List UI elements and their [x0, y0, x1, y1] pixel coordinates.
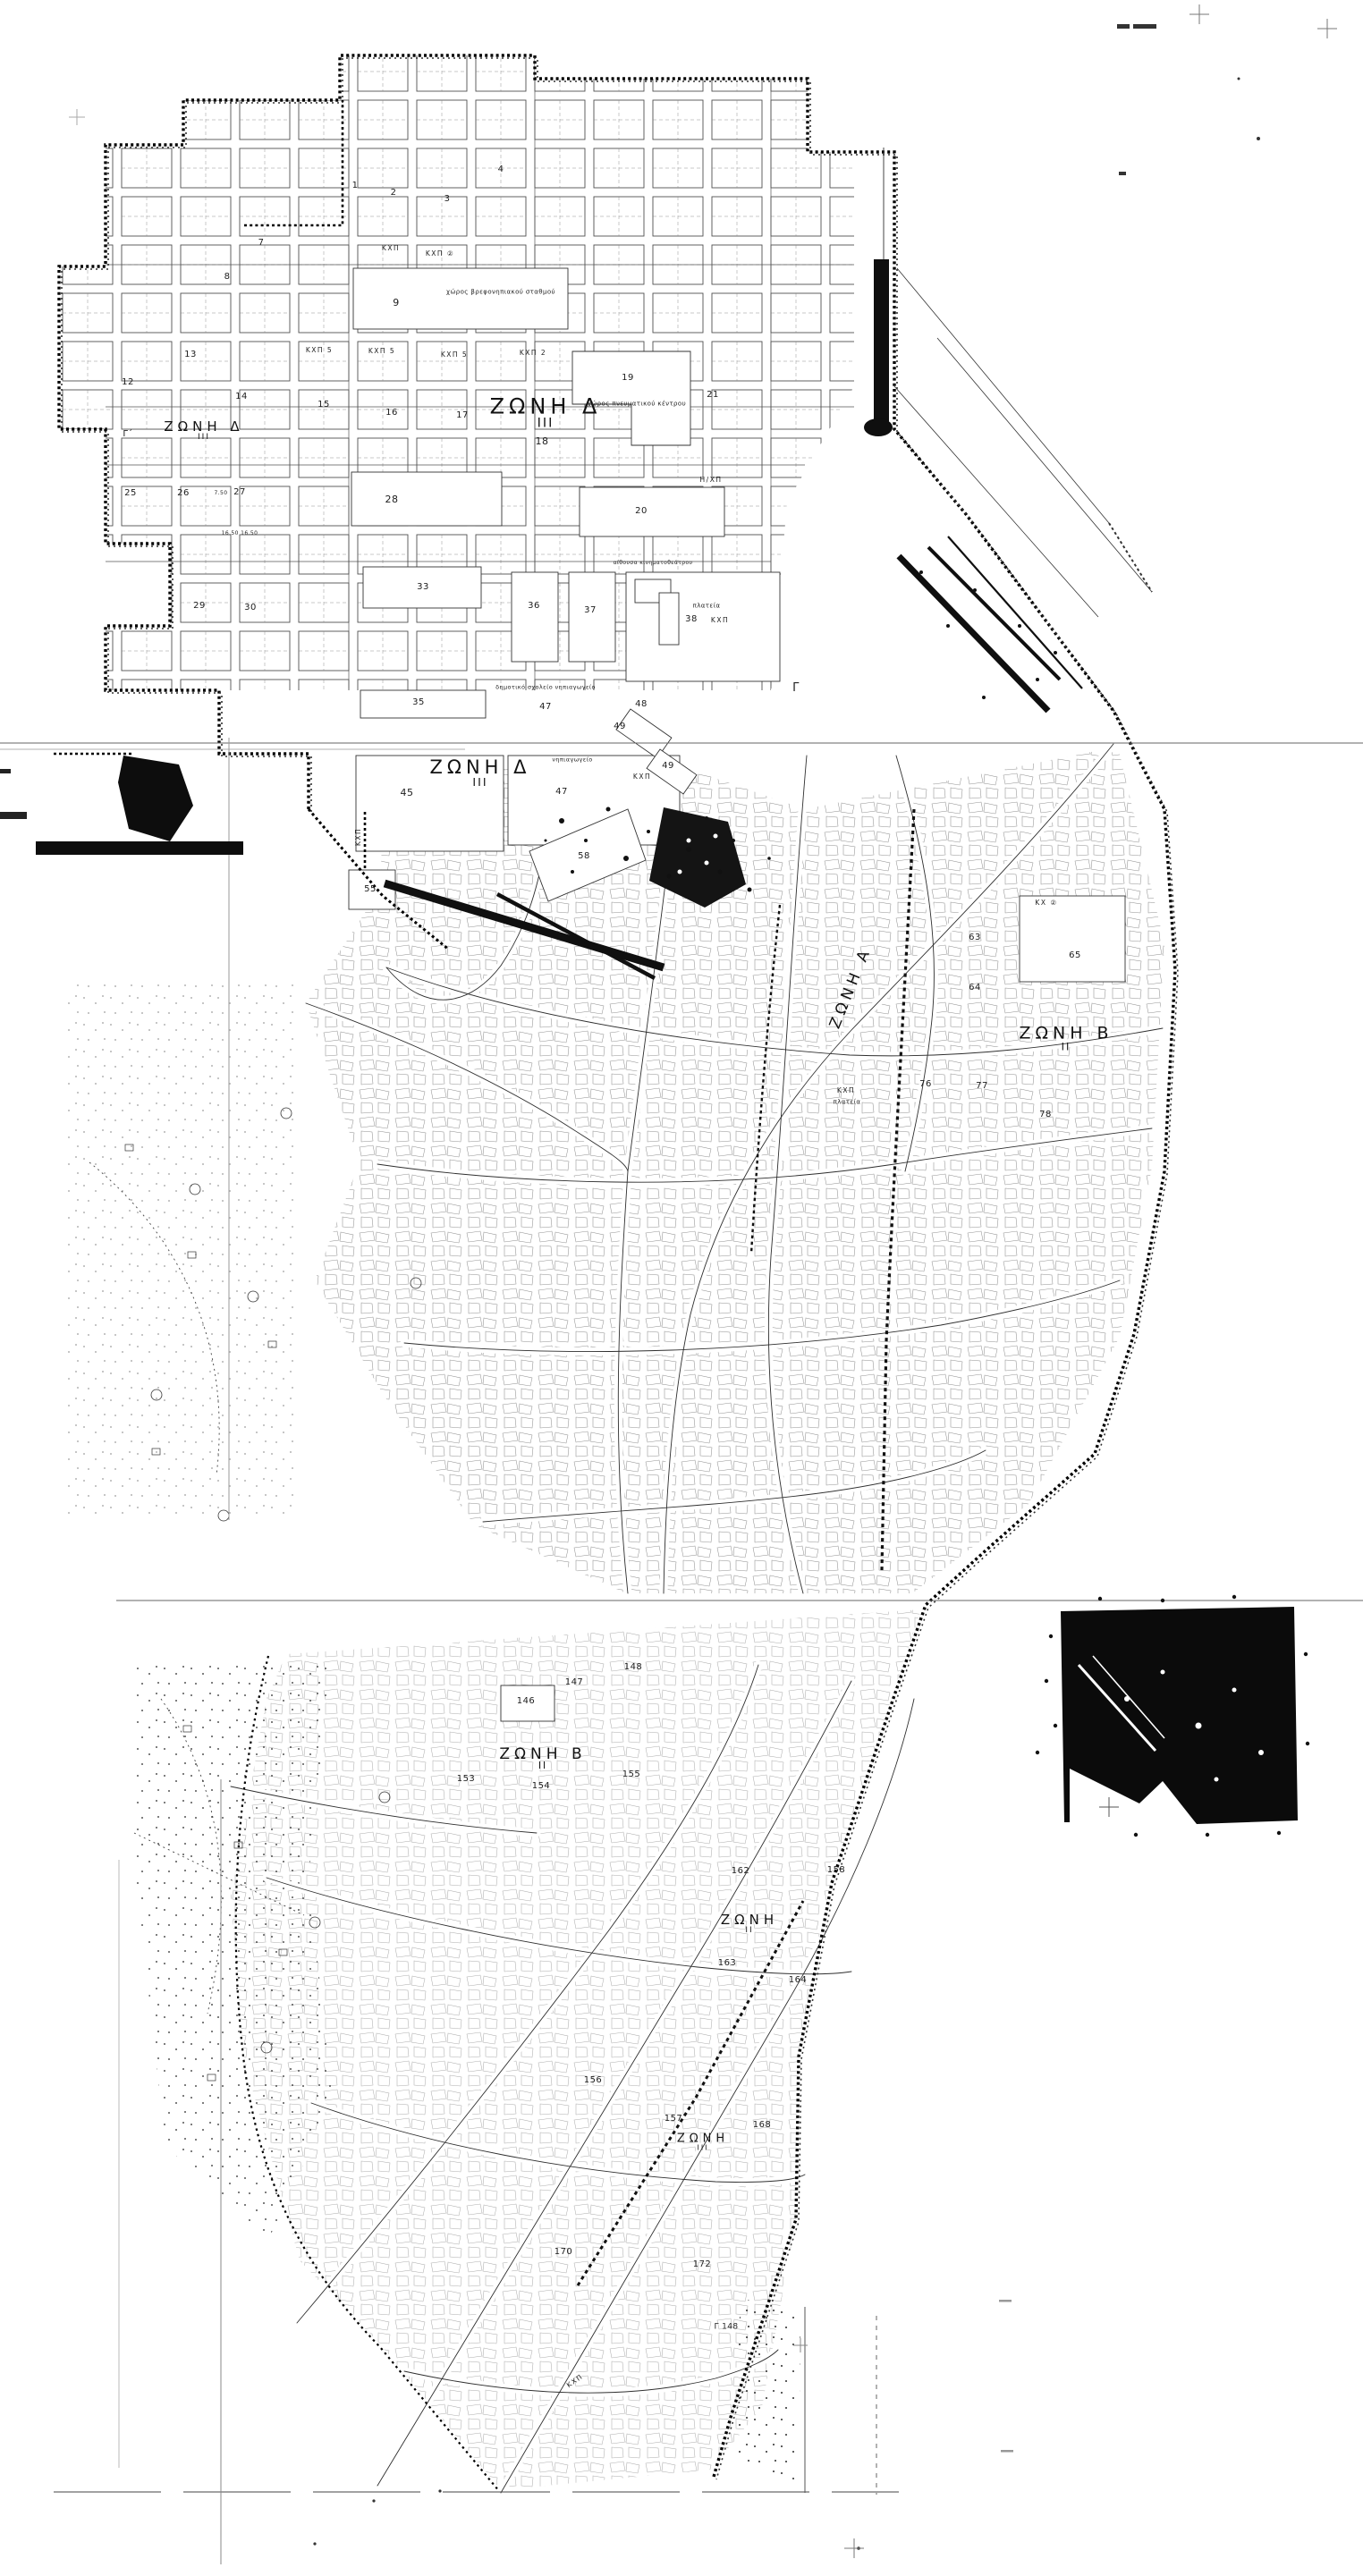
zone-numeral: ΙΙΙ [538, 418, 555, 431]
block-number: 27 [233, 488, 246, 498]
block-number: 38 [685, 615, 698, 625]
public-space-label: Η/ΧΠ [700, 477, 723, 484]
zone-label: ΖΩΝΗΙΙ [721, 1913, 778, 1935]
block-number: 157 [665, 2115, 683, 2124]
block-number: 155 [622, 1770, 641, 1780]
block-number: 33 [417, 583, 429, 593]
block-number: 154 [532, 1782, 551, 1792]
block-number: 4 [498, 165, 504, 175]
zone-numeral: ΙΙΙ [698, 2144, 709, 2151]
map-annotation: Γ΄ [123, 430, 132, 440]
zone-numeral: ΙΙΙ [198, 434, 210, 442]
public-space-label: ΚΧΠ 5 [368, 348, 395, 355]
map-annotation: πλατεία [834, 1099, 861, 1105]
zone-numeral: ΙΙ [538, 1762, 547, 1772]
zone-label: ΖΩΝΗ ΒΙΙ [499, 1747, 586, 1772]
block-number: 164 [789, 1976, 808, 1986]
map-annotation: νηπιαγωγείο [552, 757, 592, 764]
block-number: 47 [539, 703, 552, 713]
map-annotation: 16.50 16.50 [222, 531, 258, 536]
public-space-label: ΚΧΠ [382, 245, 400, 252]
block-number: 58 [578, 852, 590, 862]
map-annotation: αίθουσα κινηματοθεάτρου [614, 561, 693, 566]
block-number: 45 [401, 788, 414, 798]
public-space-label: ΚΧΠ [837, 1087, 855, 1094]
zone-name: ΖΩΝΗ Δ [430, 757, 531, 777]
block-number: 49 [614, 722, 626, 732]
public-space-label: ΚΧΠ ② [426, 250, 454, 258]
block-number: 148 [624, 1663, 643, 1673]
block-number: 170 [555, 2248, 573, 2258]
zone-label: ΖΩΝΗΙΙΙ [677, 2133, 729, 2152]
block-number: 77 [976, 1082, 988, 1092]
public-space-label: ΚΧΠ [565, 2373, 584, 2389]
public-space-label: ΚΧΠ [355, 828, 362, 846]
block-number: 9 [393, 298, 400, 308]
block-number: 15 [317, 401, 330, 410]
block-number: 48 [635, 700, 648, 710]
zone-label: ΖΩΝΗ ΔΙΙΙ [430, 757, 531, 788]
block-number: 18 [536, 436, 549, 447]
public-space-label: ΚΧΠ [711, 617, 729, 624]
map-annotation: χώρος πνευματικού κέντρου [588, 401, 686, 407]
block-number: 162 [732, 1867, 750, 1877]
block-number: 7 [258, 239, 265, 249]
block-number: 21 [707, 391, 719, 401]
block-number: 2 [391, 189, 397, 198]
map-annotation: Γ [792, 682, 800, 695]
map-annotation: χώρος βρεφονηπιακού σταθμού [446, 289, 555, 295]
block-number: 29 [193, 602, 206, 612]
block-number: 26 [177, 489, 190, 499]
zone-label: ΖΩΝΗ ΒΙΙ [1019, 1026, 1113, 1053]
block-number: 153 [457, 1775, 476, 1785]
block-number: 8 [224, 273, 231, 283]
public-space-label: ΚΧΠ 2 [520, 350, 546, 357]
block-number: 168 [753, 2121, 772, 2131]
block-number: 14 [235, 393, 248, 402]
label-layer: ΖΩΝΗ ΔΙΙΙΖΩΝΗ ΔΙΙΙΖΩΝΗ ΔΙΙΙΖΩΝΗ ΑΖΩΝΗ ΒΙ… [0, 0, 1363, 2576]
public-space-label: ΚΧΠ 5 [306, 347, 333, 354]
block-number: 156 [584, 2076, 603, 2086]
public-space-label: ΚΧΠ [633, 773, 651, 781]
zone-label: ΖΩΝΗ ΔΙΙΙ [164, 420, 243, 442]
block-number: 35 [412, 698, 425, 708]
block-number: 13 [184, 351, 197, 360]
block-number: 37 [584, 606, 597, 616]
map-annotation: Γ 148 [714, 2323, 738, 2331]
zone-name: ΖΩΝΗ Α [828, 945, 876, 1032]
map-annotation: δημοτικό σχολείο νηπιαγωγείο [495, 685, 596, 691]
zone-numeral: ΙΙ [745, 1927, 753, 1935]
block-number: 65 [1069, 951, 1081, 961]
block-number: 147 [565, 1678, 584, 1688]
zone-numeral: ΙΙΙ [472, 776, 487, 788]
zone-label: ΖΩΝΗ Α [828, 945, 876, 1032]
block-number: 12 [122, 378, 134, 388]
block-number: 64 [969, 984, 981, 993]
block-number: 19 [622, 374, 634, 384]
zone-label: ΖΩΝΗ ΔΙΙΙ [490, 395, 602, 430]
map-annotation: 7.50 [215, 491, 228, 496]
block-number: 30 [244, 604, 257, 613]
public-space-label: ΚΧ ② [1035, 899, 1057, 907]
block-number: 3 [444, 195, 451, 205]
block-number: 78 [1039, 1111, 1052, 1120]
block-number: 158 [827, 1866, 846, 1876]
block-number: 146 [517, 1697, 536, 1707]
block-number: 17 [456, 411, 469, 421]
block-number: 36 [528, 602, 540, 612]
block-number: 172 [693, 2260, 712, 2270]
block-number: 55 [364, 885, 377, 895]
zone-numeral: ΙΙ [1062, 1042, 1071, 1052]
public-space-label: ΚΧΠ 5 [441, 351, 468, 359]
block-number: 20 [635, 507, 648, 517]
block-number: 49 [662, 762, 674, 772]
block-number: 25 [124, 489, 137, 499]
block-number: 76 [919, 1080, 932, 1090]
block-number: 16 [385, 409, 398, 418]
block-number: 47 [555, 788, 568, 798]
scanned-map-page: ΖΩΝΗ ΔΙΙΙΖΩΝΗ ΔΙΙΙΖΩΝΗ ΔΙΙΙΖΩΝΗ ΑΖΩΝΗ ΒΙ… [0, 0, 1363, 2576]
block-number: 28 [385, 494, 399, 505]
block-number: 1 [352, 182, 359, 191]
block-number: 63 [969, 933, 981, 943]
block-number: 163 [718, 1959, 737, 1969]
map-annotation: πλατεία [693, 603, 721, 609]
zone-name: ΖΩΝΗ Δ [490, 395, 602, 418]
